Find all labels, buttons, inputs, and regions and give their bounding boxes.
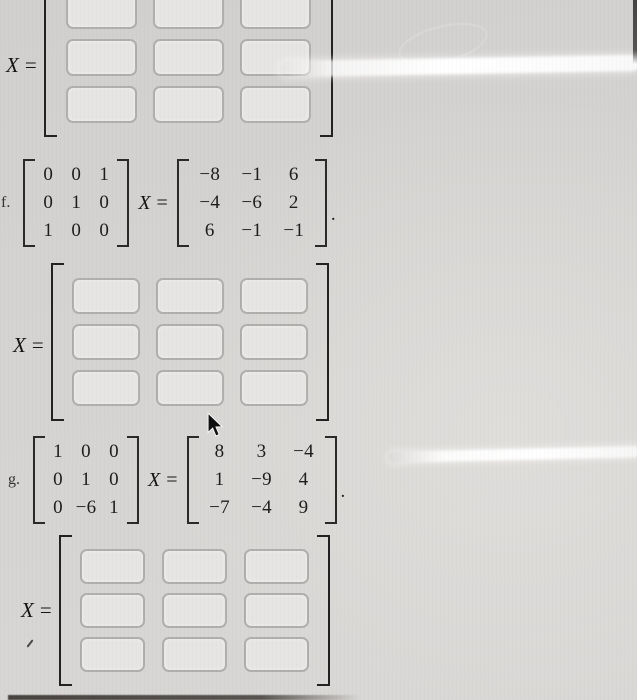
answer-cell-input[interactable] bbox=[240, 39, 311, 76]
matrix-entry: −1 bbox=[241, 164, 262, 186]
right-bracket bbox=[127, 436, 139, 524]
x-symbol: X bbox=[21, 598, 34, 622]
left-bracket bbox=[51, 263, 64, 421]
matrix-entry: 6 bbox=[289, 164, 299, 186]
answer-cell-input[interactable] bbox=[153, 39, 224, 76]
matrix-entry: 1 bbox=[215, 469, 225, 491]
matrix-entry: 2 bbox=[289, 192, 299, 214]
answer-cell-input[interactable] bbox=[72, 278, 140, 314]
problem-f-rhs-matrix: −8−16−4−626−1−1 bbox=[177, 159, 327, 247]
matrix-entry: −8 bbox=[199, 164, 220, 186]
problem-g-rhs-matrix: 83−41−94−7−49 bbox=[187, 436, 337, 524]
answer-cell-input[interactable] bbox=[80, 637, 145, 672]
answer-box-grid bbox=[72, 535, 317, 686]
answer-cell-input[interactable] bbox=[240, 370, 308, 406]
equals-sign: = bbox=[25, 53, 37, 77]
matrix-entry: −7 bbox=[209, 497, 230, 519]
answer-cell-input[interactable] bbox=[240, 278, 308, 314]
answer-cell-input[interactable] bbox=[156, 324, 224, 360]
answer-matrix-top: X= bbox=[6, 0, 333, 137]
matrix-entry: 6 bbox=[205, 220, 215, 242]
matrix-entry: 3 bbox=[257, 441, 267, 463]
matrix-entry: 0 bbox=[53, 497, 63, 519]
screen-edge-dark-strip bbox=[633, 0, 637, 64]
matrix-entry: −4 bbox=[199, 192, 220, 214]
equals-sign: = bbox=[157, 192, 168, 214]
answer-matrix-bottom: X= bbox=[21, 535, 330, 686]
answer-cell-input[interactable] bbox=[240, 0, 311, 29]
glare-streak-bottom bbox=[388, 446, 637, 463]
matrix-entry: 1 bbox=[71, 192, 81, 214]
matrix-entry: 1 bbox=[99, 164, 109, 186]
right-bracket bbox=[315, 159, 327, 247]
problem-label: f. bbox=[1, 194, 10, 212]
answer-cell-input[interactable] bbox=[240, 324, 308, 360]
answer-cell-input[interactable] bbox=[153, 0, 224, 29]
matrix-entry: 9 bbox=[299, 497, 309, 519]
left-bracket bbox=[44, 0, 57, 137]
left-bracket bbox=[187, 436, 199, 524]
matrix-entries: 1000100−61 bbox=[45, 436, 127, 524]
matrix-entry: 0 bbox=[109, 441, 119, 463]
matrix-entry: −9 bbox=[251, 469, 272, 491]
equals-sign: = bbox=[32, 333, 44, 357]
x-symbol: X bbox=[138, 192, 150, 214]
problem-g-lhs-matrix: 1000100−61 bbox=[33, 436, 139, 524]
matrix-entry: 0 bbox=[71, 220, 81, 242]
x-symbol: X bbox=[148, 469, 160, 491]
answer-cell-input[interactable] bbox=[72, 370, 140, 406]
matrix-entries: 001010100 bbox=[35, 159, 117, 247]
problem-f-lhs-matrix: 001010100 bbox=[23, 159, 129, 247]
answer-cell-input[interactable] bbox=[80, 593, 145, 628]
answer-matrix bbox=[51, 263, 329, 421]
screen-scuff-mark bbox=[395, 16, 491, 73]
glare-streak-top bbox=[280, 55, 637, 77]
answer-cell-input[interactable] bbox=[156, 278, 224, 314]
answer-cell-input[interactable] bbox=[153, 86, 224, 123]
left-bracket bbox=[177, 159, 189, 247]
problem-label: g. bbox=[8, 471, 20, 489]
x-symbol: X bbox=[6, 53, 19, 77]
left-bracket bbox=[33, 436, 45, 524]
matrix-entry: −1 bbox=[241, 220, 262, 242]
matrix-entry: −4 bbox=[251, 497, 272, 519]
math-worksheet-photo: X= f. 001010100 X= −8−16−4−626−1−1 . bbox=[0, 0, 637, 700]
answer-label-x-equals: X= bbox=[21, 598, 52, 623]
x-equals: X= bbox=[148, 469, 178, 492]
photo-bottom-shadow bbox=[8, 695, 360, 700]
answer-cell-input[interactable] bbox=[244, 637, 309, 672]
answer-cell-input[interactable] bbox=[162, 593, 227, 628]
answer-cell-input[interactable] bbox=[162, 637, 227, 672]
sentence-period: . bbox=[341, 481, 346, 503]
answer-cell-input[interactable] bbox=[80, 549, 145, 584]
right-bracket bbox=[316, 263, 329, 421]
left-bracket bbox=[59, 535, 72, 686]
answer-box-grid bbox=[64, 263, 316, 421]
problem-g: g. 1000100−61 X= 83−41−94−7−49 . bbox=[8, 435, 345, 525]
matrix-entry: 0 bbox=[43, 164, 53, 186]
answer-label-x-equals: X= bbox=[6, 53, 37, 78]
matrix-entry: 0 bbox=[71, 164, 81, 186]
right-bracket bbox=[325, 436, 337, 524]
matrix-entry: 0 bbox=[99, 192, 109, 214]
matrix-entry: −1 bbox=[283, 220, 304, 242]
matrix-entry: 0 bbox=[81, 441, 91, 463]
answer-cell-input[interactable] bbox=[66, 0, 137, 29]
matrix-entries: −8−16−4−626−1−1 bbox=[189, 159, 315, 247]
answer-matrix bbox=[59, 535, 330, 686]
matrix-entry: 1 bbox=[53, 441, 63, 463]
right-bracket bbox=[317, 535, 330, 686]
left-bracket bbox=[23, 159, 35, 247]
x-equals: X= bbox=[138, 192, 168, 215]
problem-f: f. 001010100 X= −8−16−4−626−1−1 . bbox=[1, 157, 336, 249]
answer-cell-input[interactable] bbox=[72, 324, 140, 360]
x-symbol: X bbox=[13, 333, 26, 357]
matrix-entry: 1 bbox=[109, 497, 119, 519]
right-bracket bbox=[117, 159, 129, 247]
answer-label-x-equals: X= bbox=[13, 333, 44, 358]
answer-matrix-middle: X= bbox=[13, 263, 329, 421]
matrix-entry: −6 bbox=[241, 192, 262, 214]
answer-cell-input[interactable] bbox=[244, 593, 309, 628]
mouse-cursor bbox=[206, 412, 224, 438]
matrix-entry: 1 bbox=[43, 220, 53, 242]
answer-cell-input[interactable] bbox=[240, 86, 311, 123]
answer-box-grid bbox=[57, 0, 320, 137]
matrix-entry: 0 bbox=[43, 192, 53, 214]
answer-cell-input[interactable] bbox=[162, 549, 227, 584]
matrix-entry: 0 bbox=[99, 220, 109, 242]
answer-cell-input[interactable] bbox=[66, 86, 137, 123]
right-bracket bbox=[320, 0, 333, 137]
matrix-entry: 0 bbox=[53, 469, 63, 491]
answer-cell-input[interactable] bbox=[244, 549, 309, 584]
matrix-entry: 8 bbox=[215, 441, 225, 463]
answer-matrix bbox=[44, 0, 333, 137]
equals-sign: = bbox=[166, 469, 177, 491]
matrix-entry: 0 bbox=[109, 469, 119, 491]
matrix-entry: 4 bbox=[299, 469, 309, 491]
matrix-entry: −6 bbox=[76, 497, 97, 519]
matrix-entry: −4 bbox=[293, 441, 314, 463]
matrix-entry: 1 bbox=[81, 469, 91, 491]
equals-sign: = bbox=[40, 598, 52, 622]
answer-cell-input[interactable] bbox=[156, 370, 224, 406]
sentence-period: . bbox=[331, 204, 336, 226]
answer-cell-input[interactable] bbox=[66, 39, 137, 76]
matrix-entries: 83−41−94−7−49 bbox=[199, 436, 325, 524]
